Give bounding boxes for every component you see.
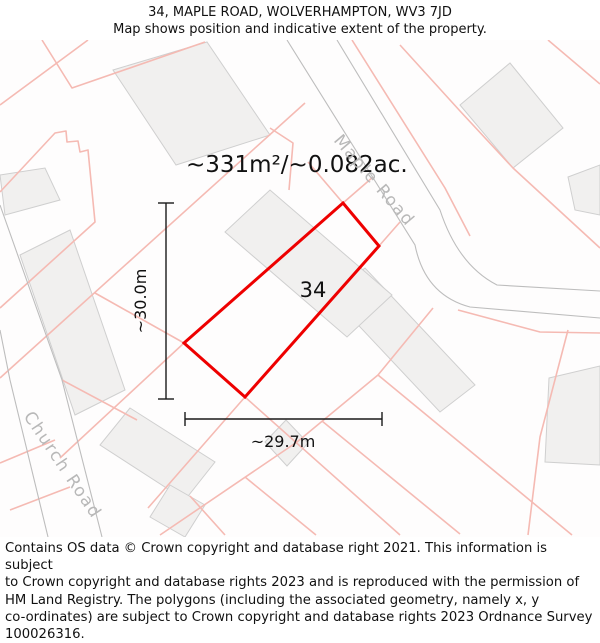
footer-line: co-ordinates) are subject to Crown copyr… <box>5 609 594 626</box>
footer-line: Contains OS data © Crown copyright and d… <box>5 540 594 574</box>
footer-line: 100026316. <box>5 626 594 643</box>
width-dimension-label: ~29.7m <box>251 432 316 451</box>
map-header: 34, MAPLE ROAD, WOLVERHAMPTON, WV3 7JD M… <box>0 0 600 40</box>
map-canvas: ~331m²/~0.082ac. 34 ~30.0m ~29.7m Maple … <box>0 40 600 537</box>
page-title: 34, MAPLE ROAD, WOLVERHAMPTON, WV3 7JD <box>0 4 600 21</box>
map-svg: ~331m²/~0.082ac. 34 ~30.0m ~29.7m Maple … <box>0 40 600 537</box>
footer-copyright: Contains OS data © Crown copyright and d… <box>0 537 600 625</box>
footer-line: HM Land Registry. The polygons (includin… <box>5 592 594 609</box>
building <box>545 366 600 465</box>
plot-number-label: 34 <box>300 278 327 302</box>
footer-line: to Crown copyright and database rights 2… <box>5 574 594 591</box>
page-subtitle: Map shows position and indicative extent… <box>0 21 600 38</box>
height-dimension-label: ~30.0m <box>131 269 150 334</box>
